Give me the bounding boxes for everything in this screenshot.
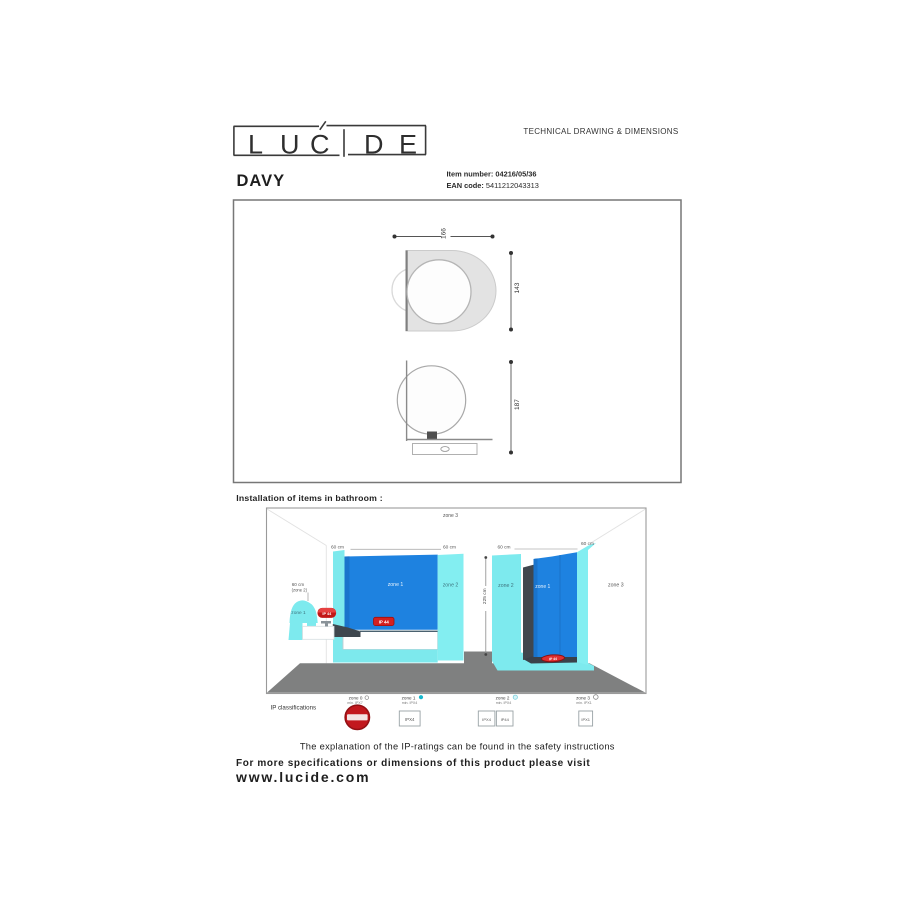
svg-text:zone 3: zone 3 — [608, 583, 624, 589]
svg-text:166: 166 — [441, 228, 448, 239]
svg-text:IP classifications: IP classifications — [271, 705, 317, 712]
svg-text:EAN code: 5411212043313: EAN code: 5411212043313 — [447, 181, 539, 190]
svg-text:The explanation of the IP-rati: The explanation of the IP-ratings can be… — [300, 742, 615, 752]
svg-text:60 cm: 60 cm — [443, 545, 456, 551]
svg-text:zone 2: zone 2 — [498, 583, 514, 589]
svg-text:min. IPX1: min. IPX1 — [576, 701, 592, 705]
svg-text:IP44: IP44 — [501, 717, 510, 722]
svg-text:60 cm: 60 cm — [497, 545, 510, 551]
svg-text:L: L — [248, 129, 263, 159]
svg-text:zone 2: zone 2 — [443, 582, 459, 588]
svg-text:IPX4: IPX4 — [482, 717, 491, 722]
svg-text:225 cm: 225 cm — [482, 588, 488, 604]
svg-text:60 cm: 60 cm — [581, 541, 594, 547]
svg-text:IP 44: IP 44 — [379, 620, 390, 625]
svg-text:TECHNICAL DRAWING & DIMENSIONS: TECHNICAL DRAWING & DIMENSIONS — [523, 127, 678, 136]
svg-text:Item number: 04216/05/36: Item number: 04216/05/36 — [447, 169, 537, 178]
svg-text:zone 1: zone 1 — [291, 610, 306, 616]
svg-text:U: U — [280, 129, 300, 159]
svg-text:min. IPX7: min. IPX7 — [347, 701, 363, 705]
svg-text:E: E — [399, 129, 417, 159]
svg-text:min. IPX4: min. IPX4 — [402, 701, 418, 705]
svg-text:(zone 2): (zone 2) — [292, 587, 308, 592]
svg-text:IPX1: IPX1 — [581, 717, 590, 722]
svg-text:zone 1: zone 1 — [388, 582, 404, 588]
svg-text:min. IPX4: min. IPX4 — [496, 701, 512, 705]
svg-text:187: 187 — [514, 399, 521, 410]
svg-text:IP 44: IP 44 — [549, 657, 557, 661]
svg-text:D: D — [364, 129, 384, 159]
svg-text:zone 3: zone 3 — [576, 695, 590, 700]
svg-text:60 cm: 60 cm — [292, 582, 305, 587]
svg-text:60 cm: 60 cm — [331, 545, 344, 551]
svg-text:zone 1: zone 1 — [535, 584, 550, 590]
svg-text:Installation of items in bathr: Installation of items in bathroom : — [236, 493, 382, 503]
svg-text:143: 143 — [514, 282, 521, 293]
svg-text:www.lucide.com: www.lucide.com — [235, 769, 370, 785]
svg-text:For more specifications or dim: For more specifications or dimensions of… — [236, 758, 590, 769]
svg-text:zone 2: zone 2 — [496, 695, 510, 700]
svg-text:zone 3: zone 3 — [443, 513, 458, 519]
svg-text:IPX4: IPX4 — [405, 717, 415, 722]
svg-text:IP 44: IP 44 — [322, 612, 332, 616]
svg-text:DAVY: DAVY — [237, 172, 286, 190]
svg-text:zone 0: zone 0 — [349, 695, 363, 700]
svg-text:zone 1: zone 1 — [402, 695, 416, 700]
svg-text:C: C — [310, 129, 330, 159]
